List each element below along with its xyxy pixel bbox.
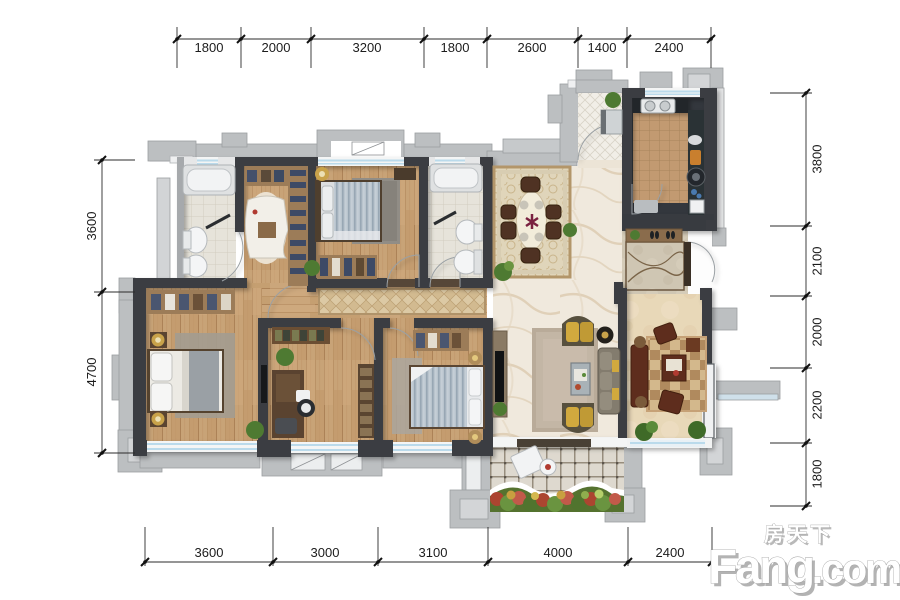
- svg-text:2400: 2400: [656, 545, 685, 560]
- svg-text:2000: 2000: [810, 318, 825, 347]
- svg-text:2000: 2000: [262, 40, 291, 55]
- svg-text:1800: 1800: [441, 40, 470, 55]
- svg-text:2200: 2200: [810, 391, 825, 420]
- svg-text:2600: 2600: [518, 40, 547, 55]
- svg-text:房天下: 房天下: [764, 522, 833, 546]
- svg-text:4000: 4000: [544, 545, 573, 560]
- svg-text:3200: 3200: [353, 40, 382, 55]
- svg-text:Fang.com: Fang.com: [708, 541, 900, 594]
- svg-text:3800: 3800: [810, 145, 825, 174]
- svg-text:2400: 2400: [655, 40, 684, 55]
- svg-text:4700: 4700: [84, 358, 99, 387]
- svg-text:3100: 3100: [419, 545, 448, 560]
- svg-text:1800: 1800: [810, 460, 825, 489]
- svg-text:1800: 1800: [195, 40, 224, 55]
- svg-text:1400: 1400: [588, 40, 617, 55]
- svg-text:3600: 3600: [195, 545, 224, 560]
- svg-text:3000: 3000: [311, 545, 340, 560]
- svg-text:2100: 2100: [810, 247, 825, 276]
- svg-text:3600: 3600: [84, 212, 99, 241]
